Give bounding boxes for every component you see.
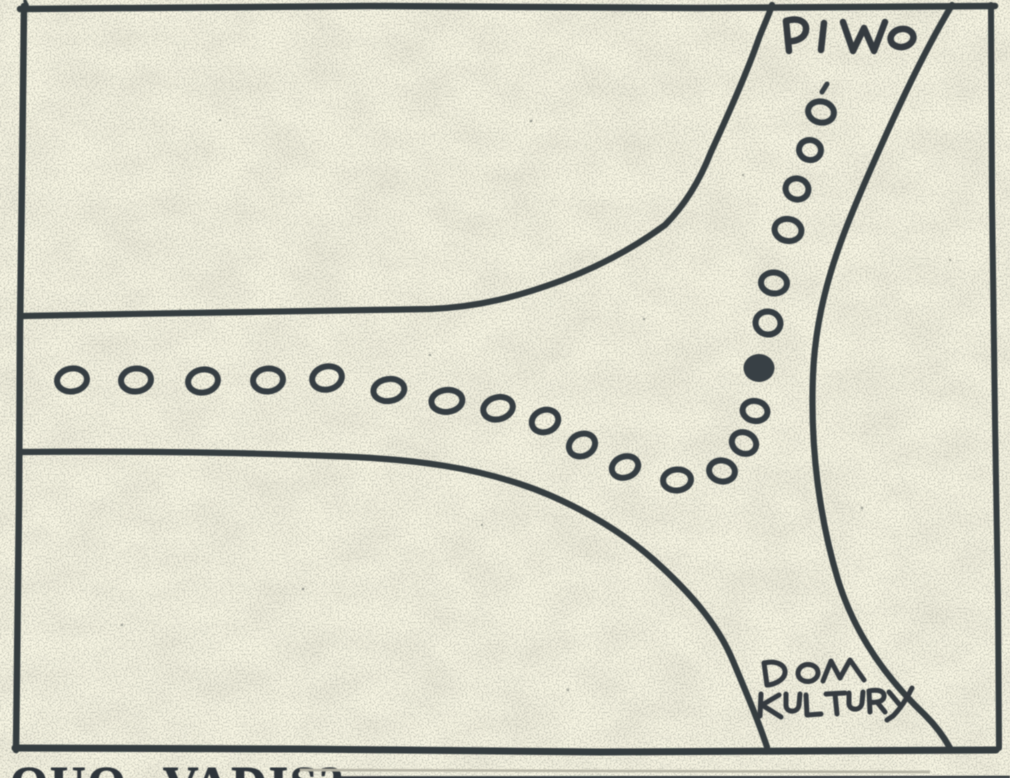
svg-text:QUO VADIS?: QUO VADIS? [10, 756, 346, 778]
